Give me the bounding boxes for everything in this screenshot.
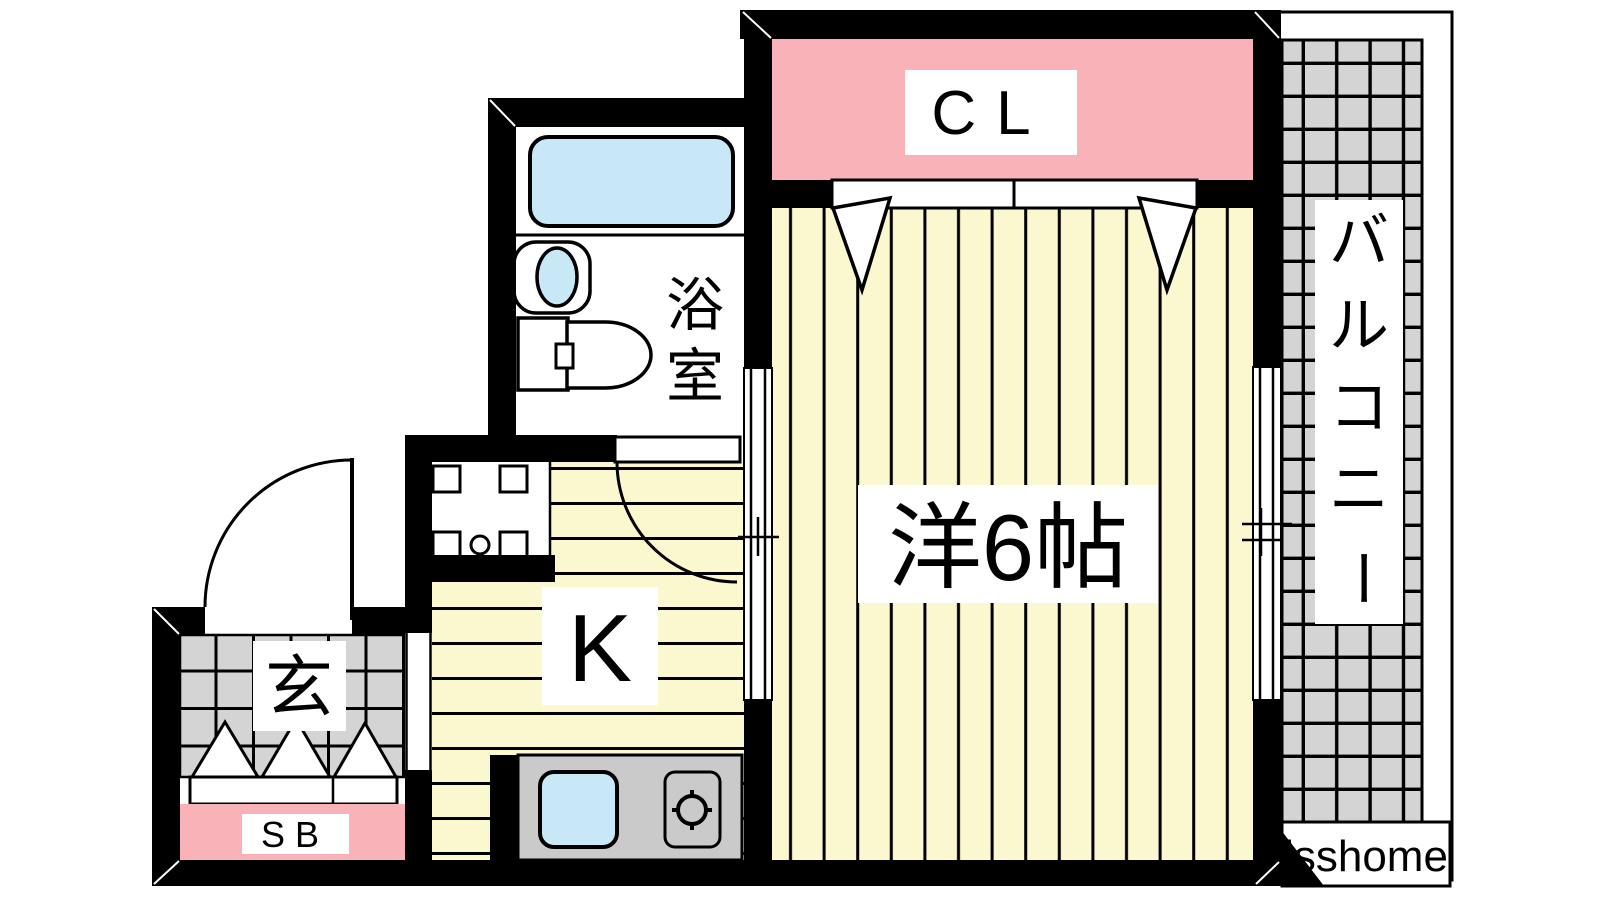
bathtub (530, 137, 733, 226)
entrance-label: 玄 (265, 650, 333, 726)
kitchen-sink (540, 772, 617, 847)
balcony-label-char: ル (1329, 292, 1389, 359)
balcony-label-char: コ (1329, 374, 1389, 441)
bathroom-door-leaf (615, 437, 740, 462)
sliding-door (738, 368, 779, 700)
entrance-step (405, 633, 432, 770)
pan-corner (433, 532, 460, 558)
wall-segment (152, 607, 180, 886)
wall-segment (772, 180, 832, 208)
toilet-flush-handle (556, 344, 573, 368)
closet-label: CL (931, 79, 1050, 148)
washing-machine-pan (432, 462, 550, 558)
wall-segment (1253, 10, 1281, 367)
toilet-bowl (567, 322, 651, 388)
wall-segment (744, 700, 772, 866)
wall-segment (152, 860, 1281, 886)
floor-plan-canvas: CL 洋6帖 K 浴 室 玄 SB バ ル コ ニ ー isshome (0, 0, 1600, 900)
wall-segment (740, 10, 1281, 39)
wall-segment (352, 607, 432, 635)
balcony-label-char: ー (1328, 548, 1395, 608)
wall-segment (405, 770, 432, 886)
step-strip (405, 633, 432, 770)
pan-corner (433, 466, 460, 492)
wall-segment (1197, 180, 1253, 208)
wall-segment (488, 98, 516, 438)
wall-segment (405, 435, 432, 633)
sink-basin (537, 248, 577, 306)
kitchen-counter (518, 755, 742, 860)
watermark: isshome (1281, 822, 1450, 886)
wall-segment (1253, 700, 1281, 886)
wall-segment (405, 435, 617, 462)
wall-segment (744, 10, 772, 368)
wall-segment (488, 98, 756, 127)
balcony-label-char: ニ (1329, 456, 1389, 523)
wall-segment (490, 755, 518, 860)
balcony-label-char: バ (1329, 208, 1389, 275)
shoe-box-label: SB (261, 814, 329, 855)
shoe-box-top (190, 777, 397, 804)
kitchen-label: K (568, 595, 632, 702)
bathroom-label-char: 浴 (666, 273, 724, 338)
drain-icon (471, 536, 489, 554)
pan-corner (500, 466, 527, 492)
bathroom-label-char: 室 (666, 344, 724, 409)
floor-plan: CL 洋6帖 K 浴 室 玄 SB バ ル コ ニ ー isshome (0, 0, 1600, 900)
wall-segment (407, 555, 555, 582)
window-frame (1253, 367, 1281, 700)
western-room-label: 洋6帖 (888, 495, 1128, 600)
pan-corner (500, 532, 527, 558)
